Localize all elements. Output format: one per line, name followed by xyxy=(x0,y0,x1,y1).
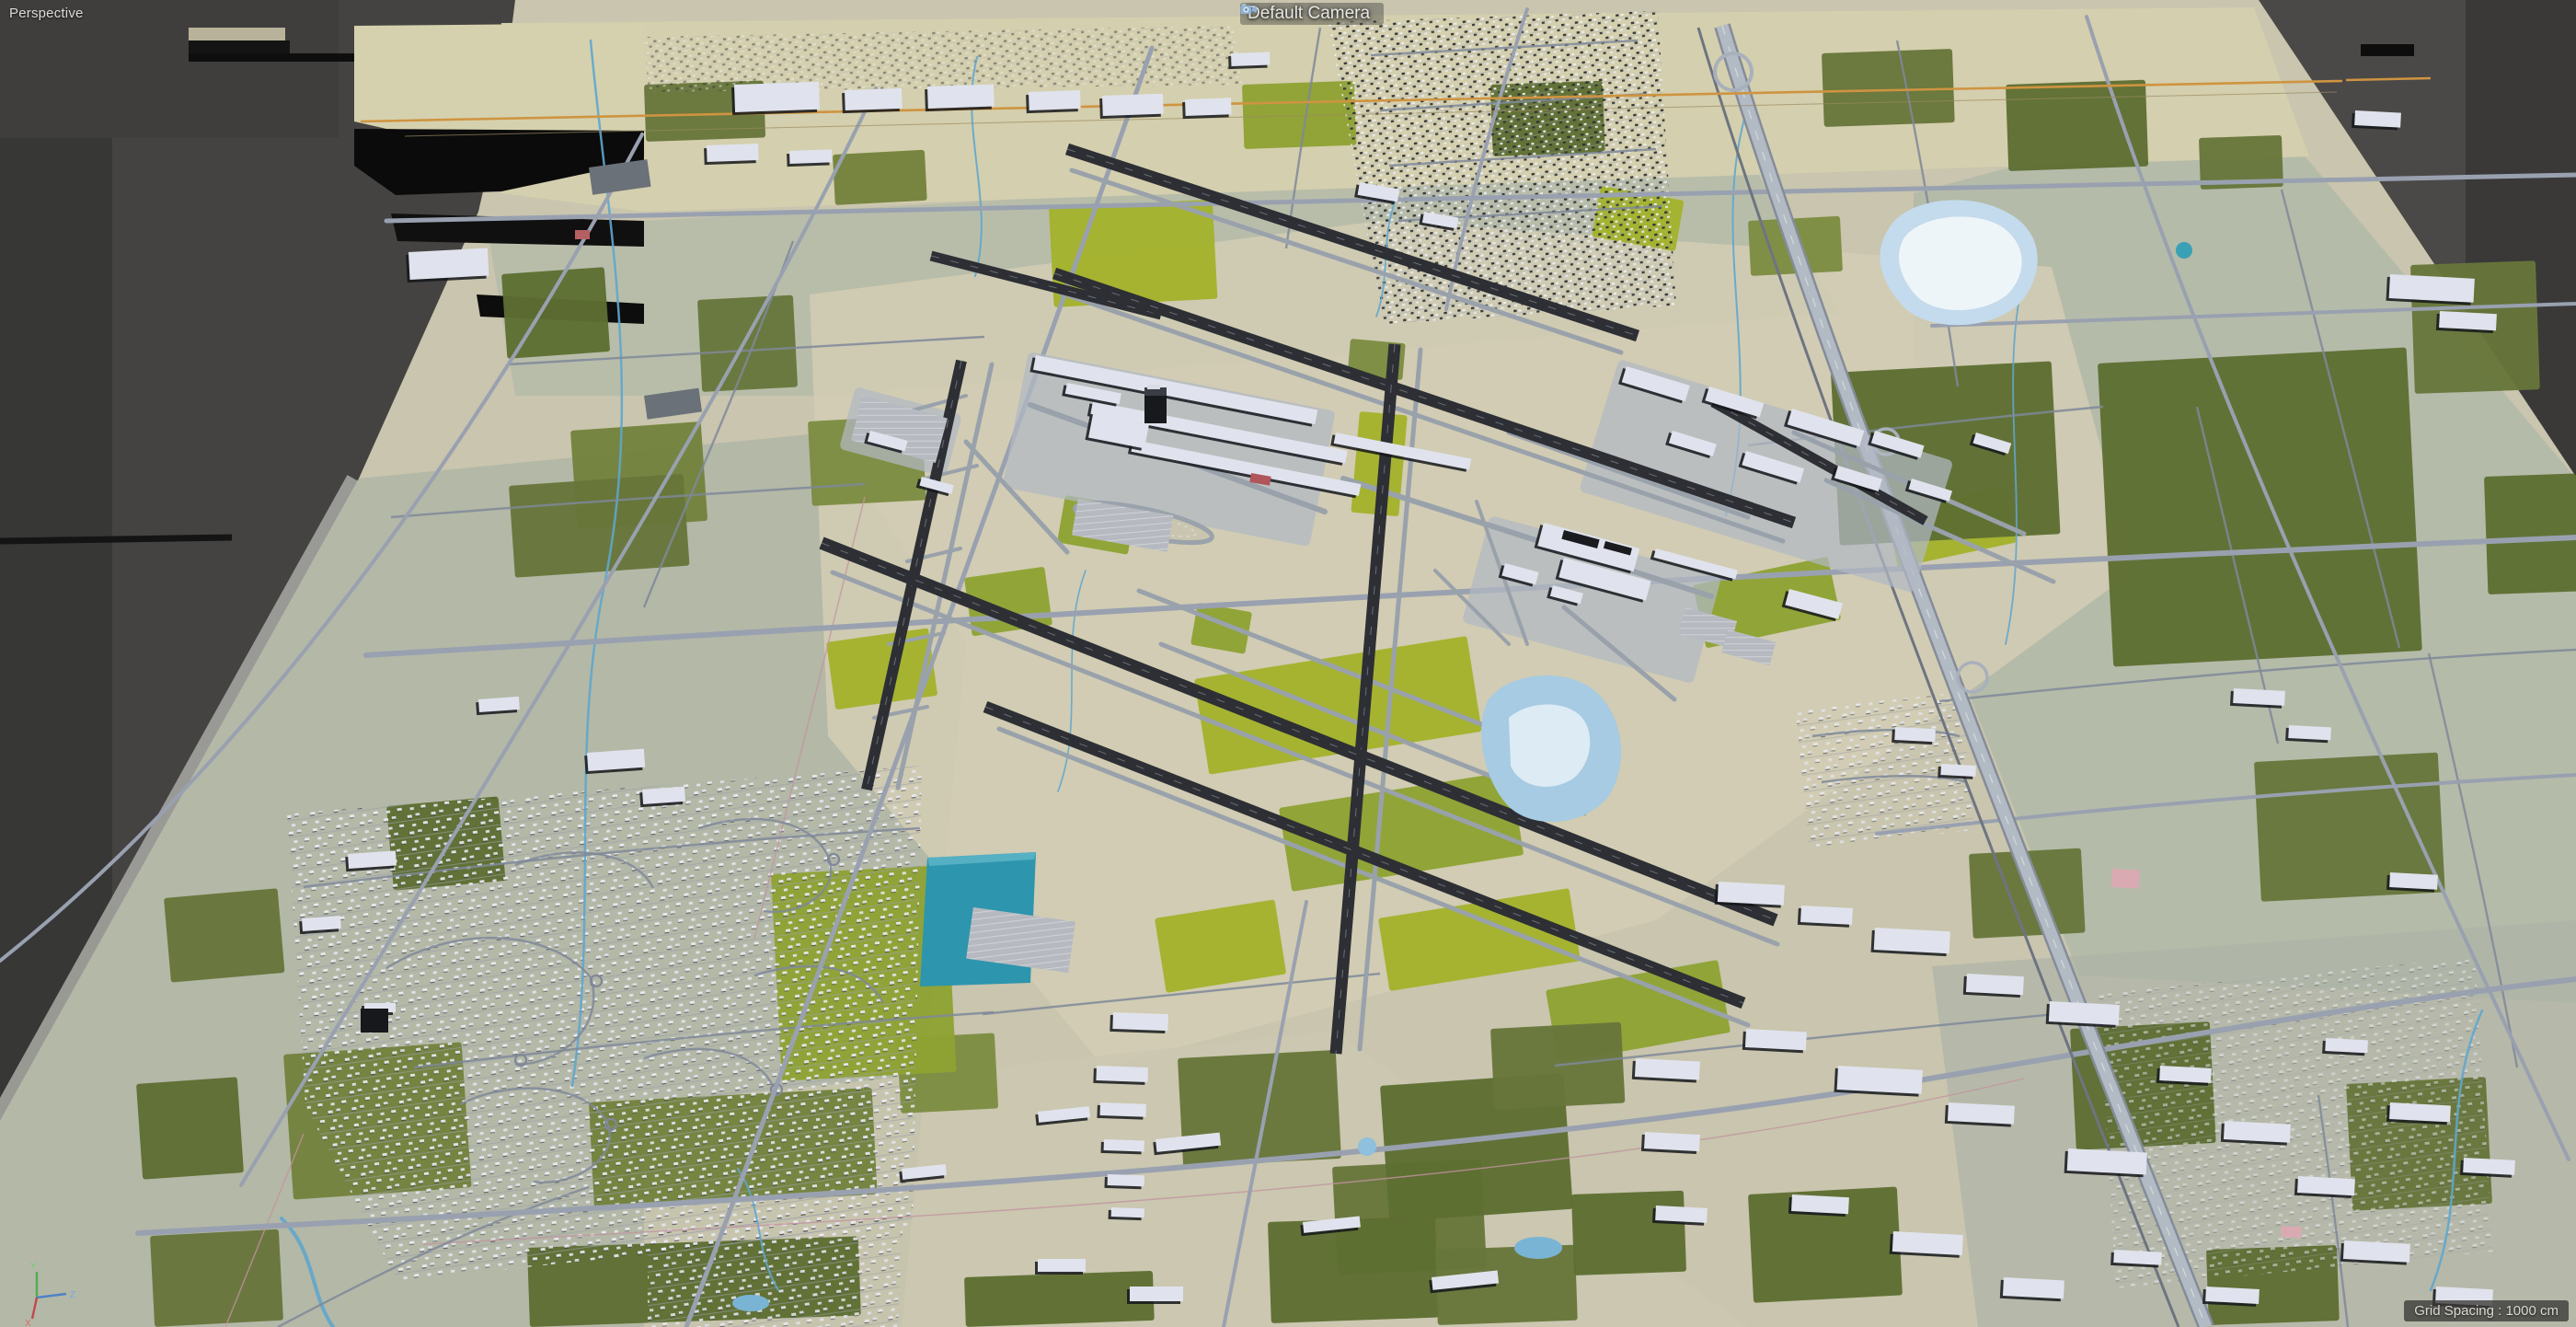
active-camera-name: Default Camera xyxy=(1248,4,1370,24)
gizmo-x-label: X xyxy=(25,1319,31,1327)
gizmo-z-label: Z xyxy=(70,1290,75,1300)
scene-3d-render: Y Z X xyxy=(0,0,2576,1327)
grid-spacing-status: Grid Spacing : 1000 cm xyxy=(2404,1300,2569,1321)
control-tower xyxy=(1144,385,1167,423)
gizmo-y-label: Y xyxy=(30,1262,37,1272)
viewport-canvas[interactable]: Y Z X Perspective Default Camera Grid Sp… xyxy=(0,0,2576,1327)
viewport-mode-label[interactable]: Perspective xyxy=(9,6,84,21)
active-camera-label[interactable]: Default Camera xyxy=(1240,3,1384,25)
